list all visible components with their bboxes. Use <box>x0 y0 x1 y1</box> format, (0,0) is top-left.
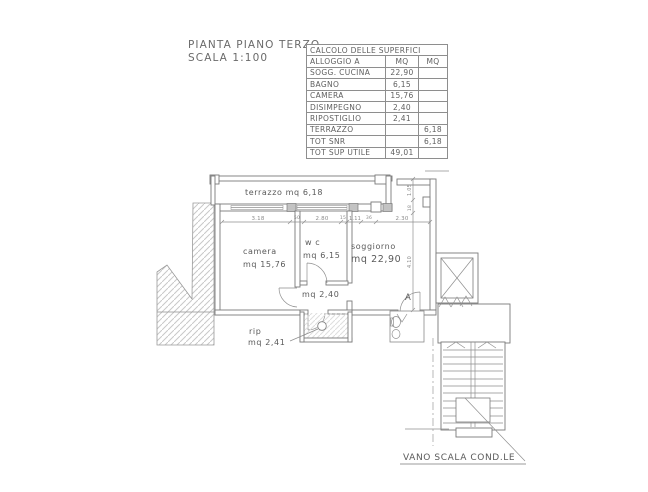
elevator-shaft <box>436 253 478 303</box>
dim-h-4: 1.11 <box>349 216 361 222</box>
stairwell <box>405 338 505 446</box>
floor-plan-drawing: 3.18 50 2.80 15 1.11 36 2.30 1.05 18 4.1… <box>0 0 648 492</box>
dim-h-0: 3.18 <box>251 216 264 222</box>
ripostiglio-room <box>290 312 352 342</box>
stair-callout-label: VANO SCALA COND.LE <box>403 453 515 463</box>
soggiorno-label-name: soggiorno <box>351 242 396 251</box>
rip-label-name: rip <box>249 327 261 336</box>
dim-v-2: 4.10 <box>407 256 413 268</box>
disimpegno-label: mq 2,40 <box>302 290 339 299</box>
camera-label-name: camera <box>243 247 277 256</box>
neighbour-wall-hatch <box>157 203 214 345</box>
dim-h-1: 50 <box>294 215 300 221</box>
dim-h-3: 15 <box>340 215 346 221</box>
pillar <box>371 202 381 212</box>
rip-label-area: mq 2,41 <box>248 338 285 347</box>
entrance-label: A <box>405 293 411 303</box>
dim-v-0: 1.05 <box>407 184 413 196</box>
dimension-chain-vertical: 1.05 18 4.10 <box>407 177 415 312</box>
wc-label-name: w c <box>305 238 320 247</box>
terrazzo-label: terrazzo mq 6,18 <box>245 188 323 197</box>
soggiorno-label-area: mq 22,90 <box>351 254 401 265</box>
dim-h-6: 2.30 <box>395 216 408 222</box>
floor-plan-sheet: PIANTA PIANO TERZO SCALA 1:100 CALCOLO D… <box>0 0 648 492</box>
dim-h-2: 2.80 <box>315 216 328 222</box>
dimension-chain-horizontal: 3.18 50 2.80 15 1.11 36 2.30 <box>220 215 432 224</box>
wc-label-area: mq 6,15 <box>303 251 340 260</box>
camera-label-area: mq 15,76 <box>243 260 286 269</box>
dim-v-1: 18 <box>407 205 413 211</box>
dim-h-5: 36 <box>366 215 372 221</box>
